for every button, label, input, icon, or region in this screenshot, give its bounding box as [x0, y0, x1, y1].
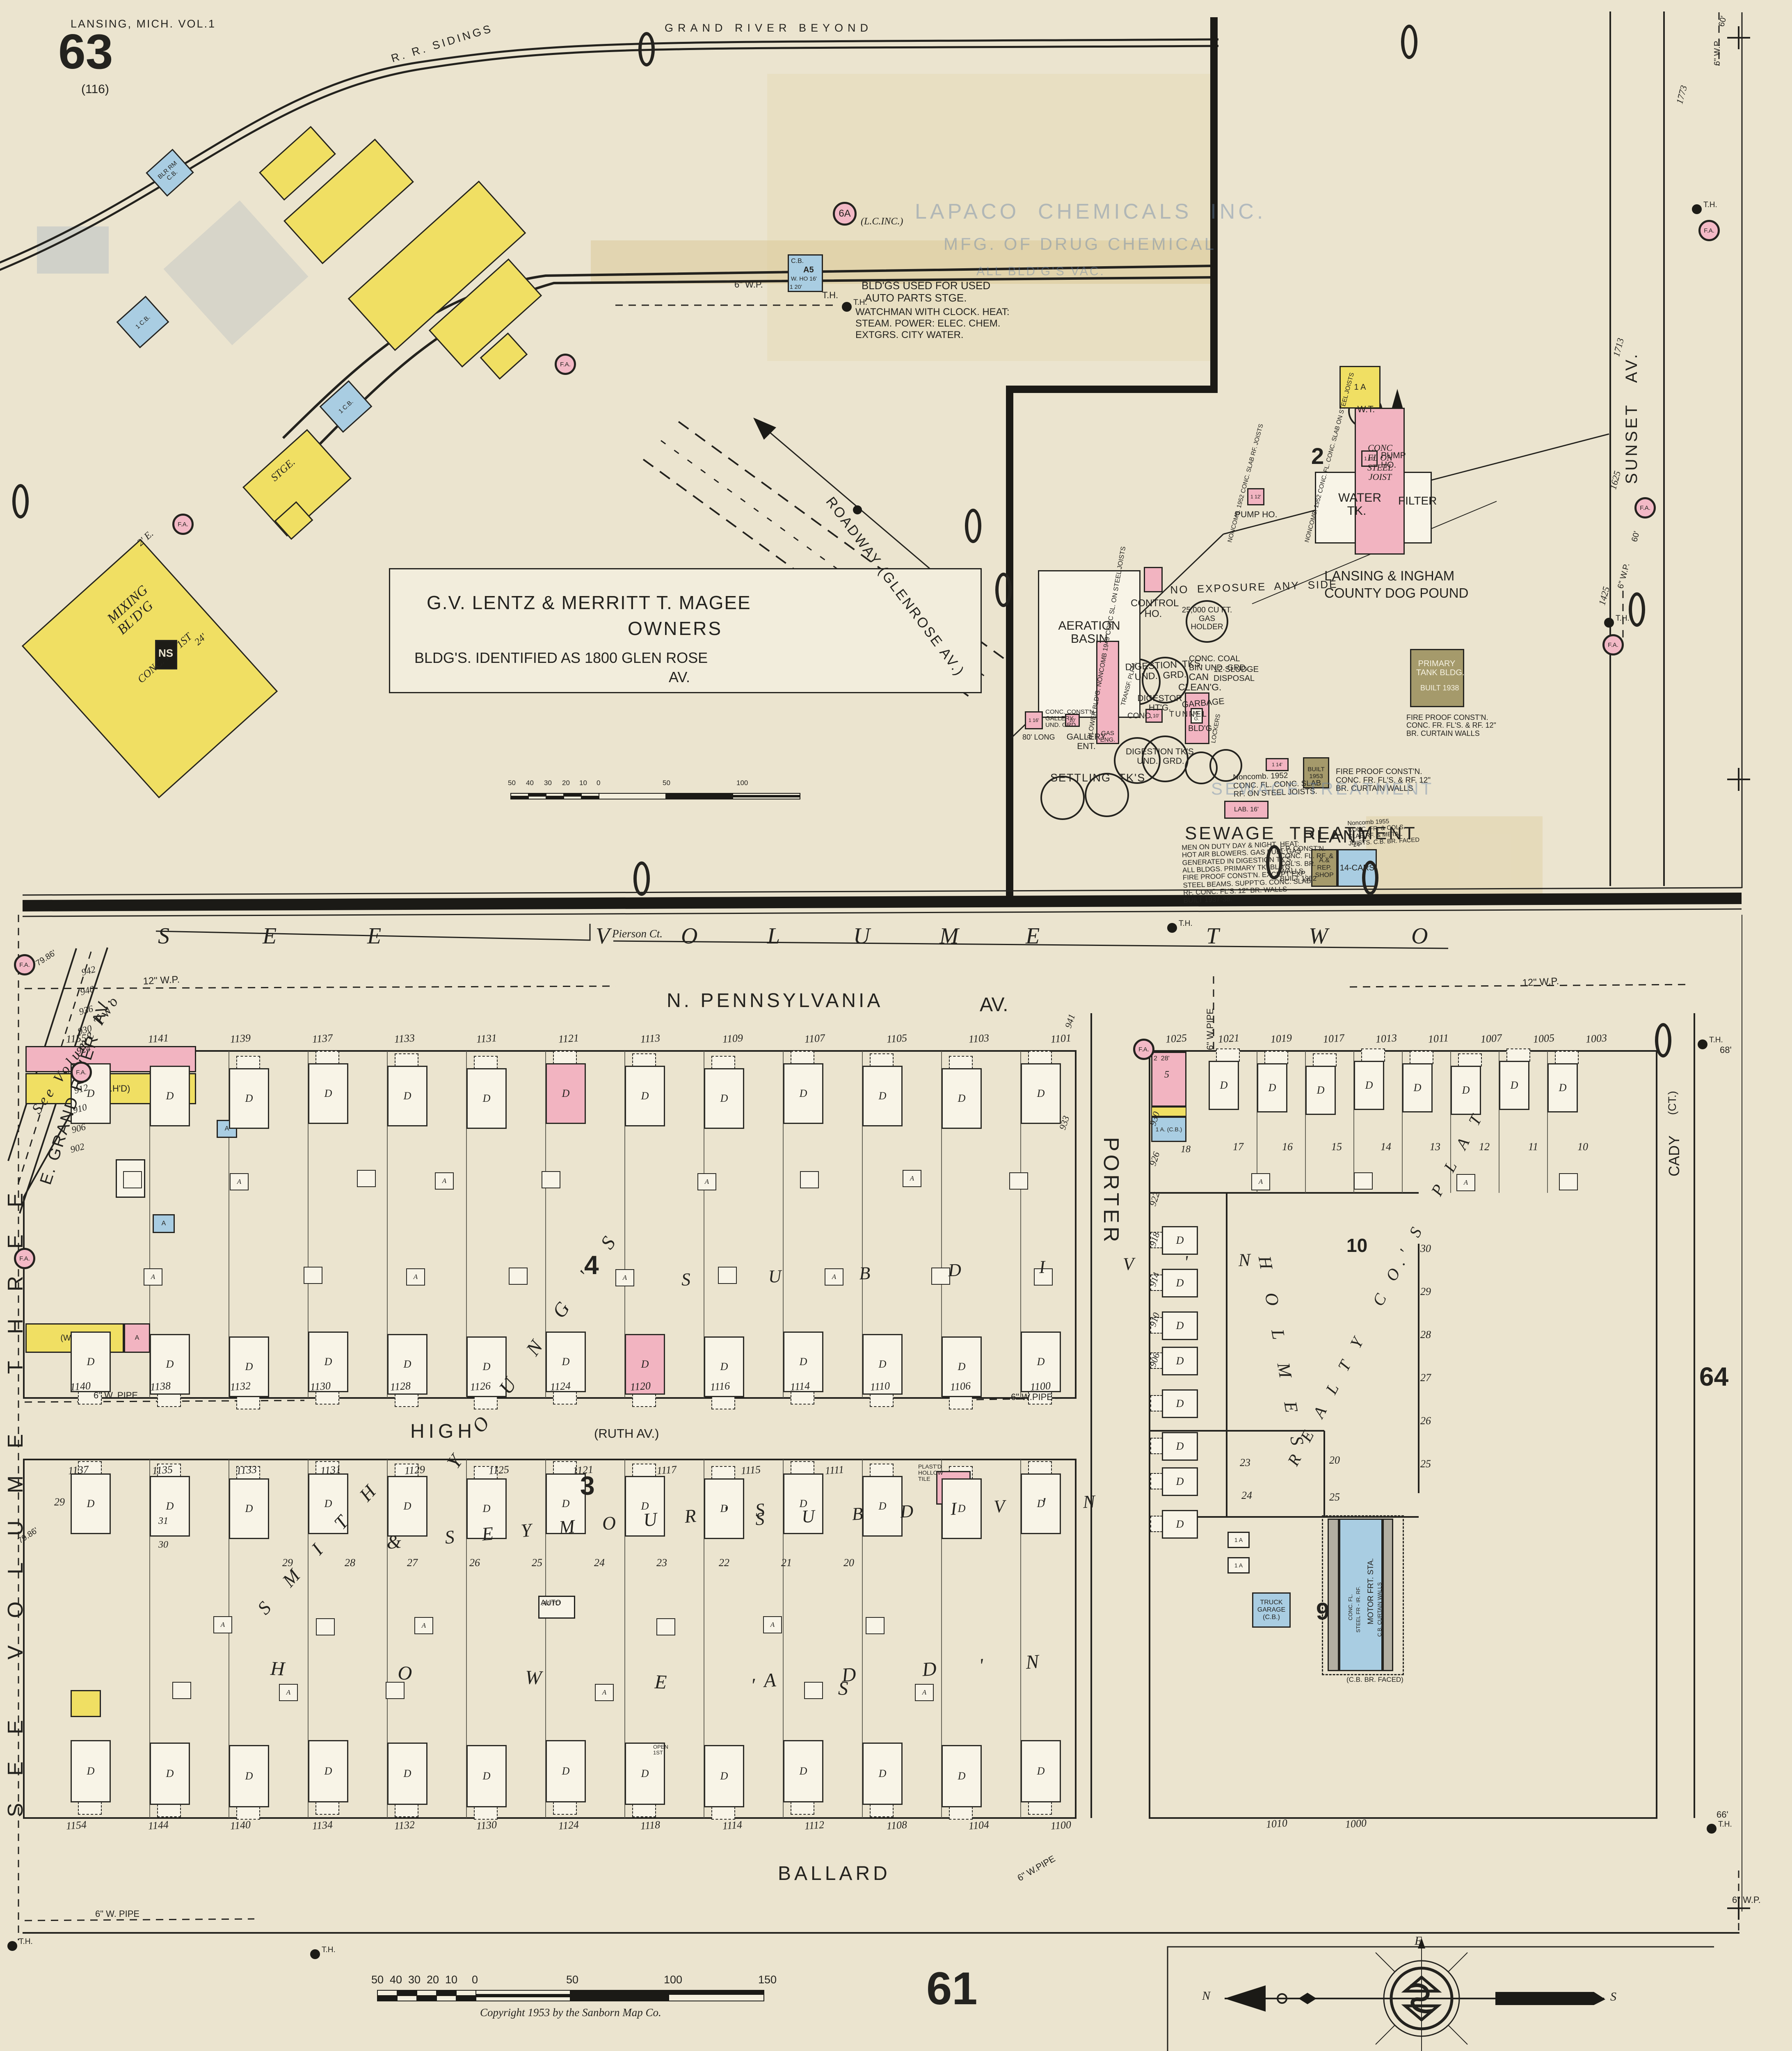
whd-pink: A	[124, 1323, 150, 1353]
oval-marker	[995, 573, 1012, 607]
house-number: 1133	[394, 1032, 415, 1046]
wp6-high-left: 6" W. PIPE	[94, 1391, 138, 1400]
porch-outline	[711, 1807, 735, 1820]
house-number: 1017	[1323, 1032, 1345, 1045]
wp6-ballard-left: 6" W. PIPE	[95, 1909, 139, 1919]
porch-outline	[632, 1464, 656, 1477]
house-number: 1124	[550, 1380, 571, 1393]
porch-outline	[870, 1394, 894, 1407]
outbuilding-footprint	[542, 1171, 560, 1188]
house-number: 1117	[656, 1464, 677, 1477]
dogpound-name-1: LANSING & INGHAM	[1324, 569, 1454, 583]
dist-68: 68'	[1720, 1045, 1732, 1055]
auto-garage-footprint: A	[230, 1173, 249, 1190]
lot-number: 24	[1241, 1490, 1252, 1501]
lapaco-ghost-1: LAPACO CHEMICALS INC.	[915, 200, 1266, 223]
wp6-porter: 6" W.PIPE	[1205, 1008, 1215, 1050]
pink-shed: 1 14'	[1266, 758, 1289, 771]
sewage-ghost-title: SEWAGE TREATMENT	[1211, 779, 1434, 798]
outbuilding-footprint	[386, 1682, 405, 1699]
house-number: 1103	[968, 1032, 990, 1046]
dwelling-footprint: D	[1402, 1063, 1433, 1112]
dwelling-footprint: D	[704, 1068, 744, 1129]
settling-label: SETTLING TK'S.	[1050, 772, 1150, 784]
can-cleaning-label: CAN CLEAN'G.	[1178, 672, 1219, 692]
porch-outline	[949, 1807, 973, 1820]
noncomb-1955-note: Noncomb 1955 CONC. FR. & COLS. SLAB RF. …	[1347, 817, 1420, 847]
cb-mark: C.B.	[791, 258, 804, 265]
dwelling-footprint: D	[1305, 1066, 1336, 1115]
lot-number: 31	[158, 1516, 168, 1527]
adjacent-sheet-64: 64	[1699, 1363, 1728, 1391]
house-number: 1025	[1165, 1032, 1187, 1045]
dwelling-footprint: D	[71, 1473, 111, 1534]
lot-number: 20	[1329, 1455, 1340, 1466]
lot-number: 11	[1528, 1141, 1538, 1153]
house-number: 1132	[394, 1819, 415, 1832]
house-number: 1140	[70, 1380, 91, 1393]
owner-line4: AV.	[669, 669, 690, 685]
outbuilding-footprint	[1354, 1172, 1373, 1190]
house-number: 1137	[68, 1464, 89, 1477]
house-number: 1105	[886, 1032, 907, 1046]
telephone-hole-dot	[7, 1941, 17, 1951]
control-label: CONTROL HO.	[1131, 598, 1176, 619]
auto-garage-footprint: A	[903, 1170, 921, 1187]
porch-outline	[315, 1802, 339, 1815]
porch-outline	[157, 1394, 181, 1407]
scale-number: 20	[427, 1974, 439, 1986]
dist-66: 66'	[1717, 1810, 1728, 1820]
dwelling-footprint: D	[1162, 1389, 1198, 1418]
auto-building-label2: AUTO	[542, 1600, 560, 1607]
outbuilding-footprint	[123, 1171, 142, 1188]
used-note-1: BLD'GS USED FOR USED	[862, 280, 990, 291]
porch-outline	[949, 1056, 973, 1069]
outbuilding-footprint	[316, 1618, 335, 1635]
telephone-hole-dot	[1167, 923, 1177, 933]
dwelling-footprint: D	[229, 1745, 269, 1807]
band-letter: E	[263, 924, 277, 948]
wp6-bottom-right: 6" W.P.	[1732, 1895, 1761, 1905]
wp6-topright: 6" W.P.	[1713, 40, 1722, 66]
band-letter: O	[681, 924, 697, 948]
dwelling-footprint: D	[308, 1063, 348, 1124]
house-number: 1104	[968, 1819, 990, 1832]
house-number: 1110	[870, 1380, 890, 1393]
street-ballard: BALLARD	[778, 1863, 891, 1884]
street-sunset: SUNSET AV.	[1623, 352, 1641, 484]
dwelling-footprint: D	[942, 1745, 982, 1807]
house-number: 1126	[470, 1380, 491, 1393]
lot-number: 29	[54, 1496, 65, 1508]
pump-house-2: 1 12'	[1247, 488, 1264, 505]
house-number: 1010	[1266, 1817, 1288, 1830]
th-label: T.H.	[822, 290, 838, 300]
wp6-high-right: 6" W.PIPE	[1011, 1392, 1053, 1402]
digestion-label-2: DIGESTION TK'S. UND. GRD.	[1126, 747, 1195, 766]
lot-number: 15	[1331, 1141, 1342, 1153]
porch-outline	[1150, 1438, 1163, 1454]
oval-marker	[1401, 25, 1417, 59]
house-number: 1118	[640, 1819, 661, 1832]
house-number: 1109	[722, 1032, 743, 1046]
outbuilding-footprint	[1559, 1173, 1578, 1190]
compass-letter-s: S	[1610, 1990, 1616, 2003]
band-letter: W	[1309, 924, 1328, 948]
owner-line2: OWNERS	[628, 619, 722, 639]
dwelling-footprint: D	[1021, 1063, 1061, 1124]
porch-outline	[78, 1802, 102, 1815]
porch-outline	[711, 1466, 735, 1479]
block-number-9: 9	[1316, 1599, 1329, 1625]
auto-garage-footprint: A	[213, 1616, 232, 1633]
fire-alarm-symbol: F.A.	[71, 1062, 92, 1083]
dwelling-footprint: D	[1209, 1061, 1239, 1110]
th-label: T.H.	[1179, 920, 1193, 928]
scale-number: 50	[566, 1974, 578, 1986]
watchman-1: WATCHMAN WITH CLOCK. HEAT:	[855, 307, 1010, 317]
auto-garage-footprint: A	[279, 1684, 298, 1701]
telephone-hole-dot	[1698, 1039, 1707, 1049]
scale-number: 100	[664, 1974, 682, 1986]
house-number: 1125	[488, 1464, 510, 1477]
scale-number: 30	[544, 779, 552, 787]
house-number: 1100	[1030, 1380, 1051, 1393]
wp12-left: 12" W.P.	[143, 974, 180, 987]
dwelling-footprint: D	[387, 1743, 427, 1805]
house-number: 1106	[950, 1380, 971, 1393]
street-porter: PORTER	[1099, 1137, 1122, 1245]
porch-outline	[157, 1804, 181, 1817]
primary-label: PRIMARY TANK BLDG.	[1416, 660, 1457, 677]
telephone-hole-dot	[1707, 1824, 1717, 1834]
porch-outline	[1028, 1461, 1052, 1474]
house-number: 1137	[312, 1032, 333, 1046]
house-number: 1114	[722, 1819, 743, 1832]
house-number: 1138	[150, 1380, 171, 1393]
watchman-3: EXTGRS. CITY WATER.	[855, 330, 964, 340]
lot-number: 29	[282, 1557, 293, 1569]
lot-number: 25	[1420, 1458, 1431, 1470]
house-number: 1000	[1345, 1817, 1367, 1830]
th-label: T.H.	[1616, 614, 1630, 623]
house-number: 1124	[558, 1819, 579, 1832]
oval-marker	[1629, 592, 1645, 627]
a5-mark: A5	[803, 266, 814, 275]
band-letter: T	[1206, 924, 1219, 948]
fire-alarm-symbol: F.A.	[14, 954, 35, 975]
pierson-ct-label: Pierson Ct.	[612, 928, 663, 940]
porch-outline	[1361, 1048, 1385, 1062]
lc-inc-label: (L.C.INC.)	[861, 217, 903, 227]
outbuilding-footprint	[800, 1171, 819, 1188]
porch-outline	[474, 1807, 498, 1820]
house-number: 1132	[230, 1380, 251, 1393]
porch-outline	[395, 1394, 418, 1407]
rr-beyond-label: GRAND RIVER BEYOND	[665, 22, 873, 34]
street-pennsylvania: N. PENNSYLVANIA	[667, 990, 883, 1012]
control-house	[1144, 567, 1163, 592]
filter-label: FILTER	[1398, 495, 1437, 507]
dwelling-footprint: D	[1162, 1269, 1198, 1297]
lapaco-ghost-2: MFG. OF DRUG CHEMICAL	[944, 235, 1216, 253]
th-label: T.H.	[1718, 1820, 1732, 1829]
lot-number: 13	[1430, 1141, 1440, 1153]
band-letter: M	[939, 924, 959, 948]
lapaco-ghost-3: ALL BLD'G'S VAC.	[976, 265, 1105, 278]
house-number: 1013	[1375, 1032, 1397, 1045]
porch-outline	[1410, 1051, 1433, 1064]
house-number: 1134	[312, 1819, 333, 1832]
lot-number: 14	[1381, 1141, 1391, 1153]
motor-gray-left	[1328, 1519, 1339, 1671]
outbuilding-footprint	[866, 1617, 885, 1634]
telephone-hole-dot	[1692, 204, 1702, 214]
dwelling-footprint: D	[942, 1068, 982, 1129]
gas-eng-label: GAS ENG.	[1096, 730, 1119, 743]
truck-garage: TRUCK GARAGE (C.B.)	[1252, 1592, 1291, 1628]
wp12-right: 12" W.P.	[1522, 976, 1559, 989]
porch-outline	[1555, 1051, 1579, 1064]
porch-outline	[553, 1391, 577, 1405]
house-number: 1139	[230, 1032, 251, 1046]
dwelling-footprint: D	[1162, 1311, 1198, 1340]
fireproof-note-1: FIRE PROOF CONST'N. CONC. FR. FL'S. & RF…	[1406, 714, 1496, 738]
oval-marker	[12, 484, 29, 518]
lab-building: LAB. 16'	[1224, 801, 1269, 819]
tunnel-label: TUNNEL	[1169, 710, 1208, 719]
house-number: 1111	[825, 1464, 844, 1477]
porch-outline	[791, 1391, 814, 1405]
lot-number: 12	[1479, 1141, 1490, 1153]
dwelling-footprint: D	[1547, 1063, 1578, 1112]
house-number: 1131	[320, 1464, 341, 1477]
dwelling-footprint: D	[387, 1066, 427, 1126]
porch-outline	[395, 1053, 418, 1067]
owner-line1: G.V. LENTZ & MERRITT T. MAGEE	[427, 593, 751, 613]
porter-pink-5: 5	[1164, 1070, 1169, 1080]
house-number: 1120	[630, 1380, 651, 1393]
fire-alarm-symbol: F.A.	[1133, 1039, 1154, 1060]
porch-outline	[1150, 1395, 1163, 1411]
house-number: 1154	[66, 1819, 87, 1832]
auto-garage-footprint: A	[915, 1684, 934, 1701]
auto-garage-footprint: A	[144, 1268, 162, 1286]
garbage-label-2: BLD'G.	[1188, 724, 1214, 733]
dwelling-footprint: D	[546, 1063, 586, 1124]
scale-number: 0	[597, 779, 600, 787]
oval-marker	[638, 32, 655, 66]
lapaco-circle-6a: 6A	[833, 202, 857, 226]
band-letter: E	[367, 924, 381, 948]
block-number-2: 2	[1311, 444, 1324, 468]
fire-alarm-symbol: F.A.	[1634, 497, 1656, 518]
copyright-note: Copyright 1953 by the Sanborn Map Co.	[480, 2007, 661, 2019]
auto-garage-footprint: A	[406, 1268, 425, 1286]
open-1st-note: OPEN 1ST	[653, 1744, 668, 1756]
scale-number: 40	[390, 1974, 402, 1986]
scale-number: 30	[408, 1974, 421, 1986]
motor-note-4: CONC. FL.	[1348, 1594, 1353, 1620]
dwelling-footprint: D	[546, 1740, 586, 1802]
motor-gray-right	[1383, 1519, 1393, 1671]
small-1a: 1 A	[1227, 1557, 1250, 1574]
block-number-4: 4	[584, 1251, 599, 1279]
telephone-hole-dot	[310, 1949, 320, 1959]
porch-outline	[395, 1804, 418, 1817]
outbuilding-footprint	[304, 1267, 322, 1284]
th-label: T.H.	[1709, 1036, 1723, 1045]
dwelling-footprint: D	[466, 1068, 507, 1129]
small-1a: 1 A	[1227, 1532, 1250, 1548]
outbuilding-footprint	[656, 1618, 675, 1635]
auto-garage-footprint: A	[414, 1617, 433, 1634]
dwelling-footprint: D	[229, 1478, 269, 1539]
porch-outline	[711, 1396, 735, 1409]
porch-outline	[474, 1056, 498, 1069]
motor-note-2: C.B. CURTAIN WALLS	[1377, 1582, 1383, 1637]
fp-const-note: F.P. CONST'N. CONC. FL. RF. & COL'S. BR.…	[1280, 845, 1333, 883]
see-volume-three: S E E V O L U M E T H R E E	[4, 1182, 27, 1817]
lot-number: 26	[469, 1557, 480, 1569]
gallery-box: 1 16'	[1025, 711, 1043, 729]
gallery-length: 80' LONG	[1022, 733, 1055, 741]
compass-letter-n: N	[1202, 1989, 1210, 2003]
porch-outline	[1028, 1802, 1052, 1815]
fire-alarm-symbol: F.A.	[555, 354, 576, 375]
aeration-label: AERATION BASIN	[1050, 619, 1128, 646]
house-number: 1107	[804, 1032, 825, 1046]
blue-shed: A	[153, 1214, 175, 1233]
house-number: 1141	[148, 1032, 169, 1046]
oval-marker	[1266, 845, 1282, 879]
dwelling-footprint: D	[1162, 1347, 1198, 1375]
dwelling-footprint: D	[150, 1743, 190, 1805]
house-number: 1021	[1218, 1032, 1240, 1045]
porch-outline	[1313, 1053, 1337, 1067]
fire-alarm-symbol: F.A.	[1602, 634, 1624, 655]
porch-outline	[315, 1391, 339, 1405]
lot-number: 26	[1420, 1415, 1431, 1427]
dwelling-footprint: D	[229, 1068, 269, 1129]
band-letter: V	[596, 924, 610, 948]
porch-outline	[949, 1396, 973, 1409]
house-number: 1130	[310, 1380, 331, 1393]
lot-number: 27	[1420, 1372, 1431, 1384]
motor-faced-note: (C.B. BR. FACED)	[1346, 1676, 1403, 1683]
lot-number: 23	[656, 1557, 667, 1569]
scale-number: 10	[579, 779, 587, 787]
house-number: 1121	[558, 1032, 579, 1046]
lot-number: 29	[1420, 1286, 1431, 1297]
d20-mark: 1 20'	[790, 284, 802, 290]
house-number: 1131	[476, 1032, 497, 1046]
scale-number: 50	[663, 779, 670, 787]
wp6-label: 6" W.P.	[734, 280, 763, 290]
dwelling-footprint: D	[71, 1740, 111, 1802]
scale-number: 100	[736, 779, 748, 787]
porch-outline	[870, 1464, 894, 1477]
owner-line3: BLDG'S. IDENTIFIED AS 1800 GLEN ROSE	[414, 650, 708, 666]
dwelling-footprint: D	[1499, 1061, 1529, 1110]
who-mark: W. HO 16'	[791, 276, 817, 282]
dwelling-footprint: D	[1257, 1063, 1287, 1112]
house-number: 1114	[790, 1380, 810, 1393]
lot-number: 16	[1282, 1141, 1293, 1153]
porch-outline	[315, 1051, 339, 1064]
house-number: 1100	[1050, 1819, 1072, 1832]
sheet-alt-number: (116)	[81, 83, 109, 96]
used-note-2: AUTO PARTS STGE.	[865, 292, 967, 304]
porch-outline	[791, 1051, 814, 1064]
lot-18: 18	[1181, 1144, 1191, 1155]
oval-marker	[633, 861, 650, 896]
dwelling-footprint: D	[783, 1740, 823, 1802]
watchman-2: STEAM. POWER: ELEC. CHEM.	[855, 318, 1000, 329]
house-number: 1108	[886, 1819, 907, 1832]
built-1938: BUILT 1938	[1420, 684, 1459, 692]
outbuilding-footprint	[1009, 1172, 1028, 1190]
dwelling-footprint: D	[1162, 1467, 1198, 1496]
lot-number: 28	[1420, 1329, 1431, 1341]
primary-tank-building	[1410, 649, 1464, 707]
porch-outline	[791, 1802, 814, 1815]
porch-outline	[553, 1051, 577, 1064]
dwelling-footprint: D	[150, 1066, 190, 1126]
dwelling-footprint: D	[1162, 1510, 1198, 1539]
motor-note-3: STEEL FR - IR. RF.	[1355, 1586, 1361, 1633]
porch-outline	[236, 1396, 260, 1409]
th-label: T.H.	[322, 1946, 336, 1955]
lot-number: 30	[1420, 1243, 1431, 1254]
pump-house-label-1: PUMP HO.	[1381, 451, 1406, 470]
porch-outline	[1264, 1051, 1288, 1064]
dwelling-footprint: D	[150, 1476, 190, 1537]
fire-alarm-symbol: F.A.	[1698, 220, 1720, 241]
dwelling-footprint: D	[466, 1745, 507, 1807]
dwelling-footprint: D	[1162, 1226, 1198, 1255]
gas-holder-label: 25,000 CU FT. GAS HOLDER	[1182, 606, 1232, 632]
street-pennsylvania-av: AV.	[980, 994, 1008, 1016]
porch-outline	[632, 1394, 656, 1407]
oval-marker	[1362, 861, 1378, 895]
sheet-number: 63	[58, 25, 113, 79]
band-letter: U	[853, 924, 870, 948]
outbuilding-footprint	[509, 1268, 528, 1285]
lot-number: 25	[532, 1557, 542, 1569]
porch-outline	[1506, 1048, 1530, 1062]
dwelling-footprint: D	[704, 1745, 744, 1807]
street-cady: CADY	[1666, 1135, 1682, 1176]
house-number: 1113	[640, 1032, 661, 1045]
porch-outline	[236, 1056, 260, 1069]
dwelling-footprint: D	[862, 1743, 903, 1805]
house-number: 1007	[1480, 1032, 1502, 1045]
band-letter: O	[1411, 924, 1428, 948]
auto-garage-footprint: A	[763, 1616, 782, 1633]
porter-pink-dim: 2 28'	[1154, 1055, 1170, 1062]
porch-outline	[632, 1804, 656, 1817]
porch-outline	[553, 1802, 577, 1815]
house-number: 1144	[148, 1819, 169, 1832]
compass-letter-e: E	[1415, 1935, 1422, 1948]
lot-number: 30	[158, 1540, 168, 1551]
lot-number: 28	[345, 1557, 355, 1569]
plastd-note: PLAST'D HOLLOW TILE	[918, 1464, 943, 1482]
house-number: 1133	[236, 1464, 257, 1477]
porch-outline	[870, 1804, 894, 1817]
